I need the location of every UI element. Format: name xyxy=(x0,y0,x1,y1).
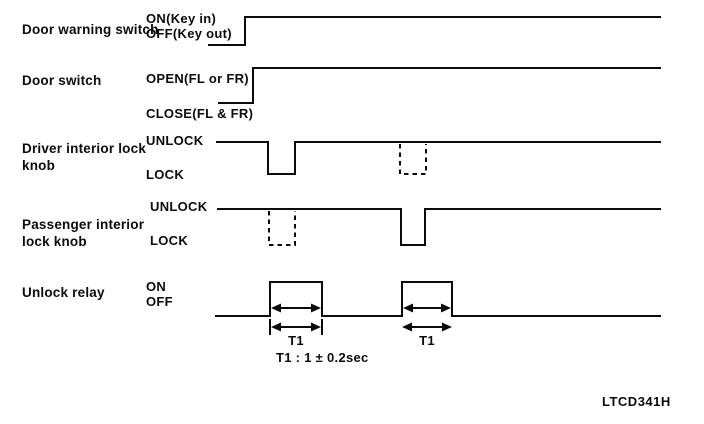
t1-dimension-arrow-2 xyxy=(402,323,452,332)
waveform-driver-lock-knob xyxy=(216,142,661,174)
signal-name-driver-lock-knob: Driver interior lock knob xyxy=(22,140,160,174)
state-label-driver-lock: LOCK xyxy=(146,168,184,182)
state-label-relay-off: OFF xyxy=(146,295,173,309)
arrow-right-head-icon xyxy=(441,304,451,313)
state-label-relay-on: ON xyxy=(146,280,166,294)
signal-name-passenger-lock-knob: Passenger interior lock knob xyxy=(22,216,160,250)
state-label-passenger-unlock: UNLOCK xyxy=(150,200,207,214)
waveform-passenger-lock-knob-dashed-pulse xyxy=(269,211,295,245)
arrow-left-head-icon xyxy=(403,304,413,313)
t1-marker-1: T1 xyxy=(270,333,322,348)
arrow-right-head-icon xyxy=(442,323,452,332)
waveform-door-switch xyxy=(218,68,661,103)
state-label-door-warning-on: ON(Key in) xyxy=(146,12,216,26)
signal-name-door-warning-switch: Door warning switch xyxy=(22,21,160,38)
state-label-door-open: OPEN(FL or FR) xyxy=(146,72,249,86)
arrow-left-head-icon xyxy=(271,323,281,332)
waveform-unlock-relay xyxy=(215,282,661,316)
waveform-driver-lock-knob-dashed-pulse xyxy=(400,144,426,174)
arrow-left-head-icon xyxy=(271,304,281,313)
waveform-passenger-lock-knob xyxy=(217,209,661,245)
arrow-right-head-icon xyxy=(311,304,321,313)
t1-span-arrow-inner-1 xyxy=(271,304,321,313)
figure-code: LTCD341H xyxy=(602,394,671,409)
t1-definition-note: T1 : 1 ± 0.2sec xyxy=(276,350,369,365)
signal-name-door-switch: Door switch xyxy=(22,72,160,89)
state-label-driver-unlock: UNLOCK xyxy=(146,134,203,148)
arrow-left-head-icon xyxy=(402,323,412,332)
waveform-door-warning-switch xyxy=(208,17,661,45)
state-label-door-warning-off: OFF(Key out) xyxy=(146,27,232,41)
state-label-door-close: CLOSE(FL & FR) xyxy=(146,107,253,121)
arrow-right-head-icon xyxy=(311,323,321,332)
t1-marker-2: T1 xyxy=(402,333,452,348)
signal-name-unlock-relay: Unlock relay xyxy=(22,284,160,301)
timing-diagram-figure: Door warning switch Door switch Driver i… xyxy=(0,0,704,424)
t1-span-arrow-inner-2 xyxy=(403,304,451,313)
state-label-passenger-lock: LOCK xyxy=(150,234,188,248)
